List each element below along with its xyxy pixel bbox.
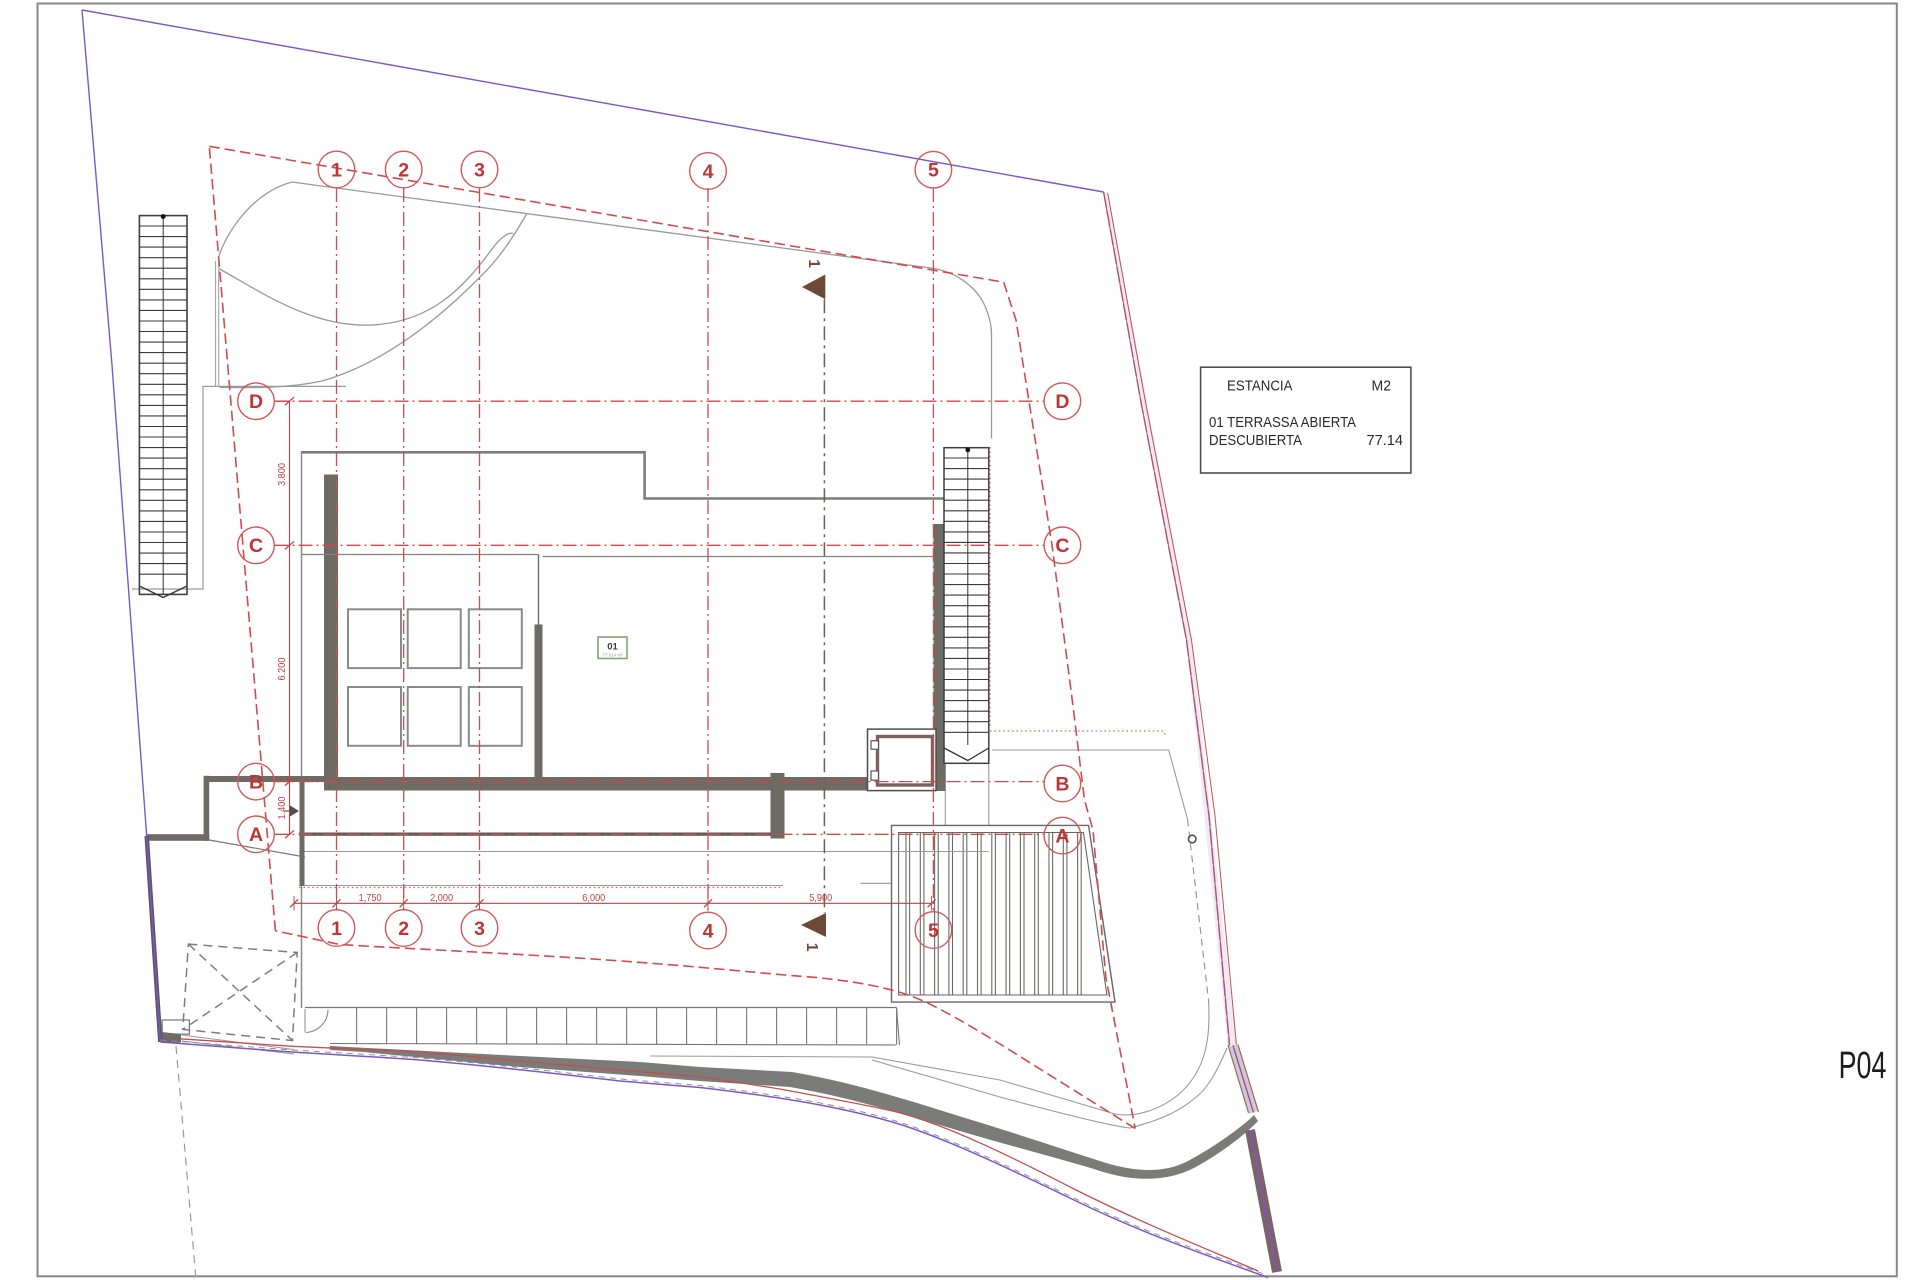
svg-text:1: 1 — [805, 259, 822, 268]
svg-text:5: 5 — [928, 160, 939, 182]
svg-text:M2: M2 — [1372, 378, 1392, 395]
svg-text:C: C — [249, 535, 263, 557]
svg-text:D: D — [249, 391, 263, 413]
svg-text:C: C — [1055, 535, 1069, 557]
svg-text:1: 1 — [331, 159, 342, 181]
svg-text:DESCUBIERTA: DESCUBIERTA — [1209, 432, 1302, 449]
svg-text:3: 3 — [474, 159, 485, 181]
svg-text:1: 1 — [803, 943, 820, 952]
svg-text:4: 4 — [703, 161, 714, 183]
svg-text:ESTANCIA: ESTANCIA — [1227, 378, 1293, 395]
svg-text:1.400: 1.400 — [276, 796, 288, 819]
svg-text:01 TERRASSA ABIERTA: 01 TERRASSA ABIERTA — [1209, 414, 1356, 431]
svg-text:1,750: 1,750 — [359, 892, 382, 904]
svg-text:D: D — [1055, 391, 1069, 413]
svg-text:6,000: 6,000 — [582, 892, 605, 904]
svg-text:6.200: 6.200 — [276, 657, 288, 680]
svg-text:A: A — [1055, 825, 1069, 847]
svg-text:3.800: 3.800 — [276, 463, 288, 486]
svg-text:5,900: 5,900 — [809, 892, 832, 904]
svg-text:77.014 m²: 77.014 m² — [602, 653, 623, 658]
svg-text:3: 3 — [474, 918, 485, 940]
svg-text:77.14: 77.14 — [1367, 432, 1404, 449]
svg-text:B: B — [249, 771, 263, 793]
svg-text:B: B — [1055, 773, 1069, 795]
svg-text:2: 2 — [398, 918, 409, 940]
svg-text:2,000: 2,000 — [430, 892, 453, 904]
svg-text:A: A — [249, 824, 263, 846]
svg-text:1: 1 — [331, 918, 342, 940]
svg-text:01: 01 — [607, 642, 618, 653]
svg-text:2: 2 — [398, 159, 409, 181]
svg-text:4: 4 — [703, 920, 714, 942]
svg-text:5: 5 — [928, 920, 939, 942]
svg-text:P04: P04 — [1839, 1045, 1887, 1087]
